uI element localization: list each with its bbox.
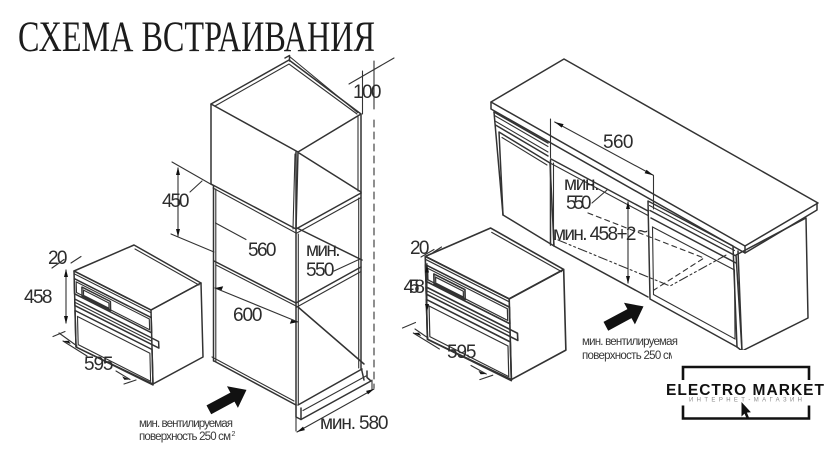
svg-text:ELECTRO MARKET: ELECTRO MARKET xyxy=(666,382,825,399)
svg-text:~: ~ xyxy=(637,222,648,243)
svg-text:мин.: мин. xyxy=(564,174,599,195)
svg-text:мин.: мин. xyxy=(306,240,340,261)
svg-text:550: 550 xyxy=(566,193,591,214)
svg-text:560: 560 xyxy=(248,240,276,261)
svg-text:СХЕМА ВСТРАИВАНИЯ: СХЕМА ВСТРАИВАНИЯ xyxy=(18,14,375,61)
svg-text:мин. 458+2: мин. 458+2 xyxy=(553,224,636,245)
svg-text:поверхность 250 см: поверхность 250 см xyxy=(582,350,676,362)
svg-text:595: 595 xyxy=(84,354,113,375)
svg-text:поверхность 250 см: поверхность 250 см xyxy=(139,431,231,443)
svg-text:458: 458 xyxy=(24,287,52,308)
svg-text:мин. вентилируемая: мин. вентилируемая xyxy=(582,336,678,348)
svg-text:20: 20 xyxy=(48,248,67,269)
svg-text:мин. вентилируемая: мин. вентилируемая xyxy=(139,418,233,430)
svg-text:20: 20 xyxy=(410,238,429,259)
svg-text:2: 2 xyxy=(232,431,236,438)
svg-text:100: 100 xyxy=(353,82,381,103)
svg-text:550: 550 xyxy=(306,260,334,281)
svg-text:458: 458 xyxy=(404,277,425,298)
svg-text:560: 560 xyxy=(603,132,633,153)
svg-text:450: 450 xyxy=(162,191,189,212)
svg-text:595: 595 xyxy=(447,342,476,363)
svg-text:мин. 580: мин. 580 xyxy=(320,413,388,434)
svg-text:600: 600 xyxy=(233,305,262,326)
